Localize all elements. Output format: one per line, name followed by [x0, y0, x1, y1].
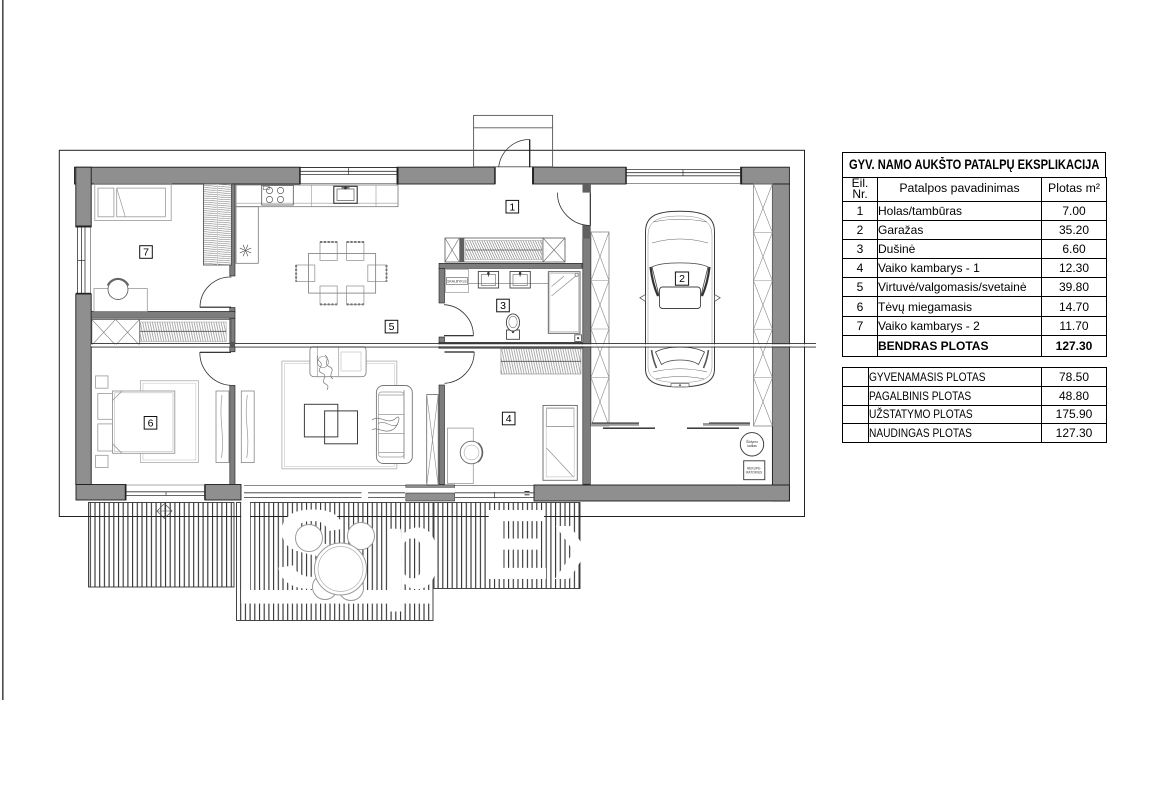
svg-text:4: 4: [506, 413, 512, 425]
svg-text:x: x: [554, 489, 610, 601]
svg-text:3: 3: [500, 300, 506, 312]
svg-text:6: 6: [148, 417, 154, 429]
svg-text:p: p: [381, 487, 441, 612]
svg-text:SKALBYKLĖ: SKALBYKLĖ: [447, 279, 467, 284]
svg-text:1: 1: [509, 201, 515, 213]
svg-text:E: E: [482, 489, 550, 601]
svg-text:5: 5: [389, 321, 395, 333]
svg-text:katilas: katilas: [747, 444, 757, 448]
svg-text:RATORIUS: RATORIUS: [746, 471, 762, 475]
svg-text:2: 2: [679, 273, 685, 285]
svg-text:7: 7: [143, 247, 149, 259]
